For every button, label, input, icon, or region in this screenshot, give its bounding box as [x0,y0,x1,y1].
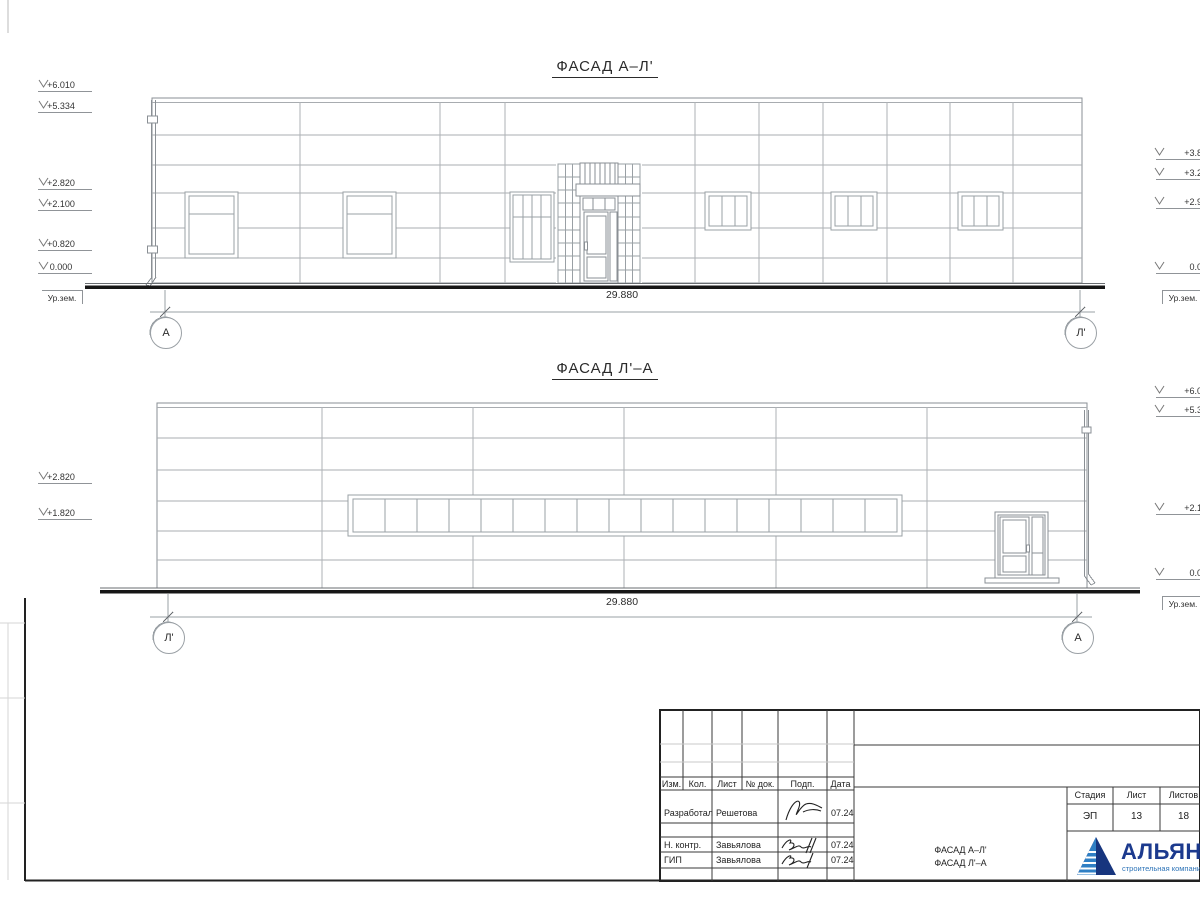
elevation-mark: +5.334 [38,100,92,113]
ground-level-label: Ур.зем. [1162,596,1200,610]
stage-value: ЭП [1067,811,1113,822]
tb-header-data: Дата [827,779,854,789]
stage-label: Стадия [1067,790,1113,800]
alliance-logo-icon [1077,837,1116,875]
tb-role-3: ГИП [664,855,682,865]
window-entrance-side [510,192,554,262]
elevation-mark: +1.820 [38,507,92,520]
drawing-sheet: { "sheet": { "facade1": { "title": "ФАСА… [0,0,1200,900]
elevation-mark: +0.820 [38,238,92,251]
axis-bubble-f1-left: А [150,317,182,349]
facade2-dimension: 29.880 [577,596,667,608]
ground-level-label: Ур.зем. [1162,290,1200,304]
entrance-portal [556,161,642,283]
elevation-mark: +2.920 [1156,196,1200,209]
elevation-mark: +2.100 [1156,502,1200,515]
window-large-2 [343,192,396,258]
elevation-mark: 0.000 [1156,567,1200,580]
tb-role-2: Н. контр. [664,840,701,850]
doc-name-line1: ФАСАД А–Л' [854,845,1067,855]
elevation-mark: +2.820 [38,471,92,484]
signatures [782,801,822,868]
elevation-mark: 0.000 [38,261,92,274]
sheets-label: Листов [1160,790,1200,800]
elevation-mark: +6.010 [1156,385,1200,398]
side-door [985,512,1059,583]
drawing-linework [0,0,1200,900]
tb-date-2: 07.24 [831,840,854,850]
tb-header-izm: Изм. [660,779,683,789]
sheet-value: 13 [1113,811,1160,822]
axis-bubble-f2-right: А [1062,622,1094,654]
doc-name-line2: ФАСАД Л'–А [854,858,1067,868]
elevation-mark: +3.820 [1156,147,1200,160]
tb-header-ndok: № док. [742,779,778,789]
sheets-value: 18 [1160,811,1200,822]
tb-header-podp: Подп. [778,779,827,789]
alliance-logo-subtitle: строительная компания [1122,864,1200,873]
elevation-mark: +2.820 [38,177,92,190]
elevation-mark: +5.334 [1156,404,1200,417]
facade1-dimension: 29.880 [577,289,667,301]
entrance-door [580,196,618,283]
tb-role-1: Разработал [664,808,713,818]
elevation-mark: +3.220 [1156,167,1200,180]
downpipe-left [146,100,158,286]
tb-header-kol: Кол. [683,779,712,789]
tb-name-3: Завьялова [716,855,761,865]
tb-date-1: 07.24 [831,808,854,818]
facade2-drawing [100,403,1140,652]
window-small-2 [831,192,877,230]
tb-header-list: Лист [712,779,742,789]
canopy [576,184,640,196]
tb-name-1: Решетова [716,808,757,818]
elevation-mark: +2.100 [38,198,92,211]
sheet-label: Лист [1113,790,1160,800]
tb-name-2: Завьялова [716,840,761,850]
elevation-mark: +6.010 [38,79,92,92]
tb-date-3: 07.24 [831,855,854,865]
ground-level-label: Ур.зем. [42,290,83,304]
axis-bubble-f1-right: Л' [1065,317,1097,349]
alliance-logo-text: АЛЬЯНС [1121,839,1200,865]
facade1-title: ФАСАД А–Л' [495,58,715,75]
facade1-drawing [85,98,1105,347]
elevation-mark: 0.000 [1156,261,1200,274]
axis-bubble-f2-left: Л' [153,622,185,654]
window-large-1 [185,192,238,258]
ground-line-1 [85,284,1105,288]
facade2-title: ФАСАД Л'–А [495,360,715,377]
window-small-3 [958,192,1003,230]
ribbon-window [348,495,902,536]
window-small-1 [705,192,751,230]
